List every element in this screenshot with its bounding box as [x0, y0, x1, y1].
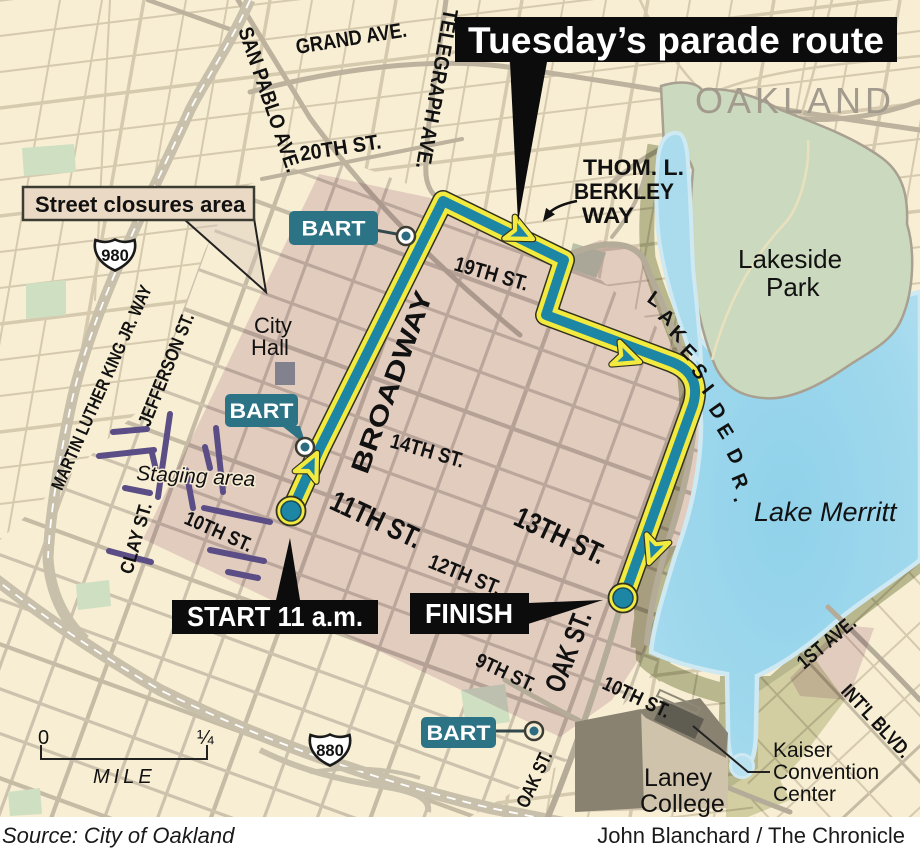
svg-text:BERKLEY: BERKLEY — [574, 179, 674, 204]
svg-text:BART: BART — [230, 400, 294, 423]
svg-text:Tuesday’s parade route: Tuesday’s parade route — [468, 20, 884, 61]
svg-text:880: 880 — [316, 742, 344, 760]
svg-text:Center: Center — [773, 783, 836, 806]
svg-text:Street closures area: Street closures area — [35, 192, 246, 217]
svg-text:OAKLAND: OAKLAND — [695, 80, 895, 121]
svg-text:Lake Merritt: Lake Merritt — [754, 497, 898, 527]
svg-text:980: 980 — [101, 247, 129, 265]
svg-text:College: College — [640, 790, 725, 818]
svg-text:WAY: WAY — [582, 203, 634, 228]
svg-text:Laney: Laney — [644, 764, 713, 792]
svg-text:Park: Park — [766, 272, 820, 302]
svg-text:BART: BART — [427, 722, 491, 745]
svg-text:MILE: MILE — [93, 766, 156, 788]
svg-text:0: 0 — [38, 727, 49, 749]
svg-text:START 11 a.m.: START 11 a.m. — [187, 601, 363, 632]
svg-text:BART: BART — [302, 218, 366, 241]
svg-text:John Blanchard / The Chronicle: John Blanchard / The Chronicle — [597, 823, 905, 848]
svg-text:FINISH: FINISH — [425, 598, 513, 629]
svg-text:Source: City of Oakland: Source: City of Oakland — [2, 823, 235, 848]
svg-text:¼: ¼ — [197, 727, 214, 749]
svg-text:Convention: Convention — [773, 761, 879, 784]
svg-text:Lakeside: Lakeside — [738, 244, 842, 274]
svg-text:THOM. L.: THOM. L. — [583, 155, 684, 180]
svg-text:Kaiser: Kaiser — [773, 739, 833, 762]
svg-text:Hall: Hall — [251, 335, 289, 360]
